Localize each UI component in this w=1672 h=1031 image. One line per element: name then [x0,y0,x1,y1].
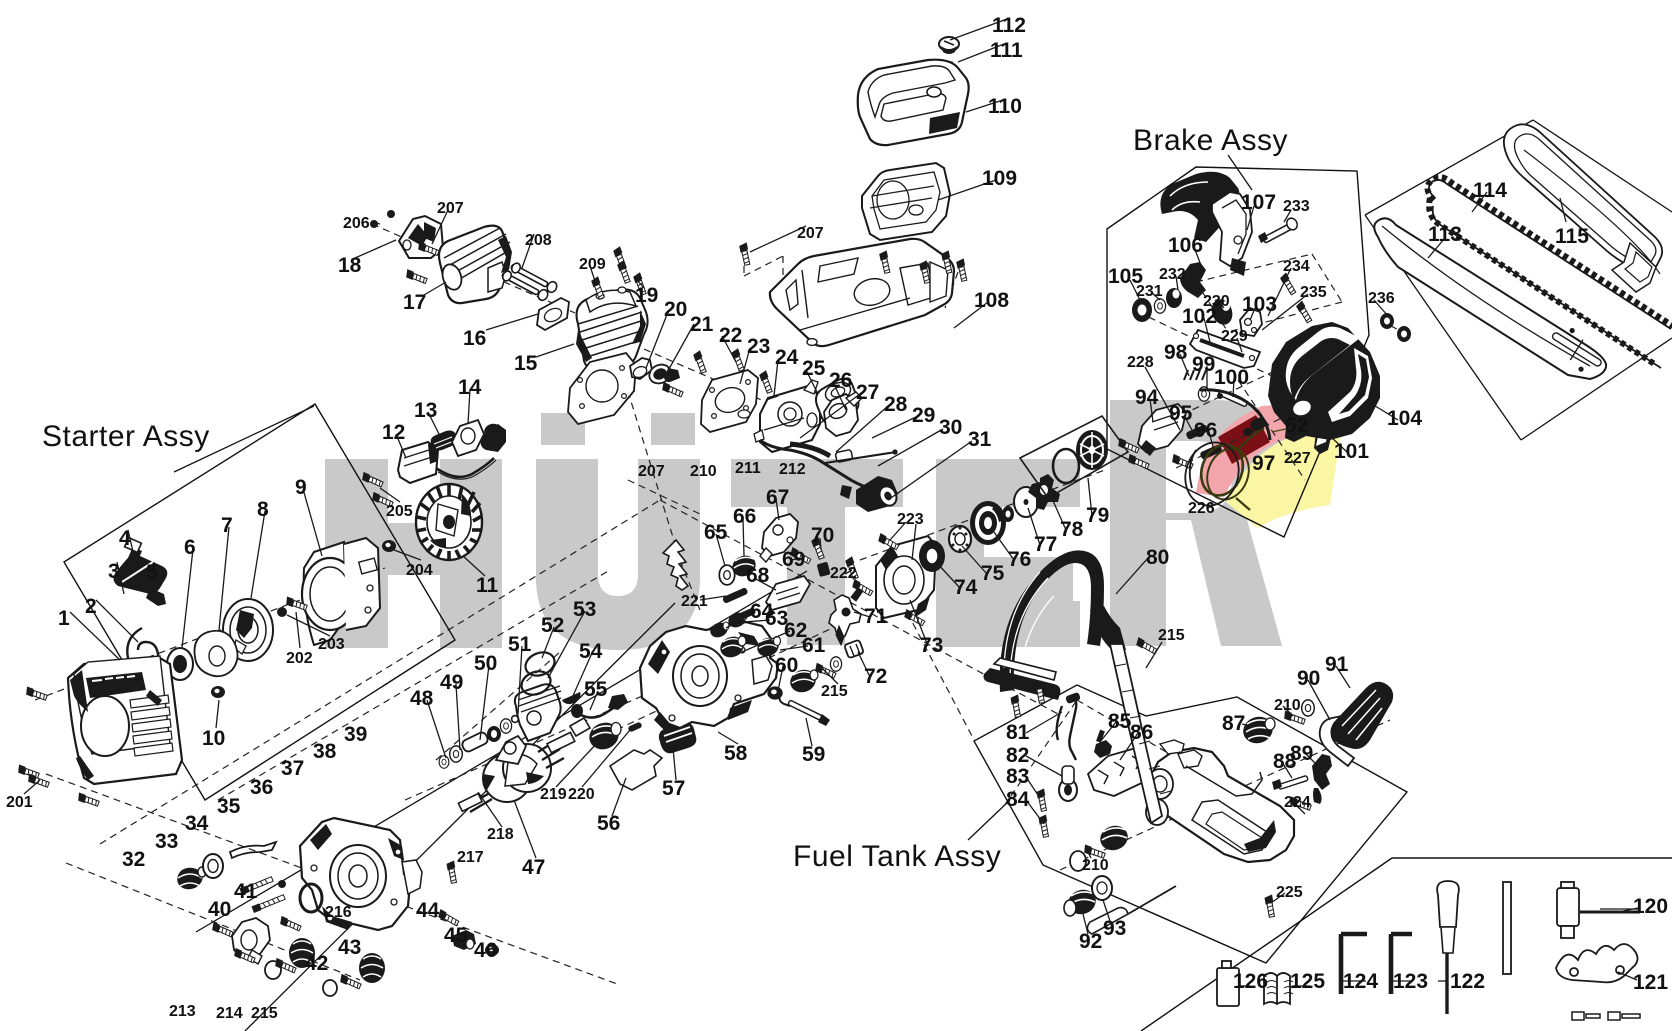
svg-text:15: 15 [514,352,538,375]
svg-text:78: 78 [1060,518,1084,541]
svg-text:57: 57 [662,777,685,800]
svg-text:59: 59 [802,743,825,766]
svg-text:9: 9 [295,476,307,499]
svg-text:215: 215 [1158,627,1185,644]
svg-text:45: 45 [444,924,468,947]
svg-text:92: 92 [1079,930,1102,953]
svg-text:101: 101 [1334,440,1369,463]
svg-text:32: 32 [122,848,145,871]
svg-text:211: 211 [735,460,761,477]
svg-text:125: 125 [1290,970,1325,993]
svg-text:115: 115 [1555,225,1589,248]
svg-text:85: 85 [1108,710,1132,733]
svg-text:53: 53 [573,598,596,621]
svg-text:1: 1 [58,607,70,630]
svg-text:207: 207 [437,200,464,217]
svg-text:36: 36 [250,776,273,799]
svg-text:98: 98 [1164,341,1188,364]
svg-text:80: 80 [1146,546,1169,569]
svg-text:210: 210 [690,463,717,480]
svg-text:29: 29 [912,404,935,427]
svg-text:114: 114 [1473,179,1507,202]
svg-text:35: 35 [217,795,241,818]
svg-text:71: 71 [864,605,888,628]
svg-text:58: 58 [724,742,748,765]
svg-text:64: 64 [750,600,774,623]
svg-text:2: 2 [85,595,97,618]
svg-text:16: 16 [463,327,486,350]
svg-text:24: 24 [775,346,799,369]
svg-text:215: 215 [821,683,848,700]
svg-text:73: 73 [920,634,943,657]
svg-text:86: 86 [1130,721,1153,744]
svg-text:236: 236 [1368,290,1395,307]
svg-text:234: 234 [1283,258,1310,275]
svg-text:123: 123 [1393,970,1428,993]
svg-text:206: 206 [343,215,370,232]
svg-text:75: 75 [981,562,1005,585]
svg-text:228: 228 [1127,354,1154,371]
svg-text:229: 229 [1221,328,1248,345]
svg-text:100: 100 [1214,366,1249,389]
svg-text:38: 38 [313,740,337,763]
svg-text:99: 99 [1192,353,1215,376]
svg-text:112: 112 [992,14,1026,37]
svg-text:14: 14 [458,376,482,399]
svg-text:113: 113 [1428,223,1462,246]
svg-text:107: 107 [1241,191,1276,214]
svg-text:22: 22 [719,324,742,347]
svg-text:19: 19 [635,284,658,307]
svg-text:209: 209 [579,256,606,273]
svg-text:68: 68 [746,564,770,587]
svg-text:77: 77 [1034,533,1057,556]
svg-text:93: 93 [1103,917,1126,940]
svg-text:230: 230 [1203,293,1230,310]
svg-text:120: 120 [1633,895,1668,918]
svg-text:81: 81 [1006,721,1030,744]
svg-text:44: 44 [416,899,440,922]
svg-text:Starter Assy: Starter Assy [42,420,210,453]
svg-text:108: 108 [974,289,1009,312]
svg-text:89: 89 [1290,742,1313,765]
svg-text:34: 34 [185,812,209,835]
svg-text:217: 217 [457,849,484,866]
svg-text:Brake Assy: Brake Assy [1133,124,1288,157]
svg-text:49: 49 [440,671,463,694]
svg-text:12: 12 [382,421,405,444]
svg-text:235: 235 [1300,284,1327,301]
svg-text:50: 50 [474,652,497,675]
svg-text:46: 46 [474,939,497,962]
svg-text:7: 7 [221,514,233,537]
svg-text:28: 28 [884,393,908,416]
svg-text:222: 222 [830,565,857,582]
svg-text:26: 26 [829,369,852,392]
svg-text:221: 221 [681,593,708,610]
svg-text:210: 210 [1274,697,1301,714]
svg-text:20: 20 [664,298,687,321]
svg-text:13: 13 [414,399,437,422]
svg-text:10: 10 [202,727,225,750]
svg-text:225: 225 [1276,884,1303,901]
svg-text:41: 41 [234,880,258,903]
svg-text:37: 37 [281,757,304,780]
svg-text:110: 110 [988,95,1022,118]
svg-text:52: 52 [541,614,564,637]
svg-text:233: 233 [1283,198,1310,215]
svg-text:18: 18 [338,254,362,277]
svg-text:25: 25 [802,357,826,380]
svg-text:8: 8 [257,498,269,521]
svg-text:104: 104 [1387,407,1422,430]
svg-text:87: 87 [1222,712,1245,735]
svg-text:21: 21 [690,313,714,336]
svg-text:214: 214 [216,1005,243,1022]
svg-text:223: 223 [897,511,924,528]
svg-text:207: 207 [638,463,665,480]
svg-text:231: 231 [1136,283,1163,300]
svg-text:17: 17 [403,291,426,314]
svg-text:220: 220 [568,786,595,803]
svg-text:76: 76 [1008,548,1031,571]
svg-text:69: 69 [782,548,805,571]
svg-text:55: 55 [584,678,608,701]
svg-text:121: 121 [1633,971,1668,994]
svg-text:Fuel Tank Assy: Fuel Tank Assy [793,840,1001,873]
svg-text:94: 94 [1135,386,1159,409]
svg-text:3: 3 [108,560,120,583]
svg-text:103: 103 [1242,293,1277,316]
svg-text:48: 48 [410,687,434,710]
svg-text:207: 207 [797,225,824,242]
svg-text:203: 203 [318,636,345,653]
svg-text:4: 4 [119,527,131,550]
svg-text:66: 66 [733,505,756,528]
svg-text:56: 56 [597,812,620,835]
svg-text:219: 219 [540,786,567,803]
svg-text:30: 30 [939,416,962,439]
svg-text:232: 232 [1159,266,1186,283]
svg-text:6: 6 [184,536,196,559]
svg-text:42: 42 [305,952,328,975]
svg-text:95: 95 [1169,402,1193,425]
svg-text:208: 208 [525,232,552,249]
svg-text:109: 109 [982,167,1017,190]
svg-text:215: 215 [251,1005,278,1022]
svg-text:126: 126 [1233,970,1268,993]
svg-text:65: 65 [704,521,728,544]
svg-text:23: 23 [747,335,770,358]
svg-text:27: 27 [856,381,879,404]
svg-text:84: 84 [1006,788,1030,811]
svg-text:106: 106 [1168,234,1203,257]
svg-text:72: 72 [864,665,887,688]
svg-text:122: 122 [1450,970,1485,993]
svg-text:204: 204 [406,562,433,579]
svg-text:111: 111 [990,39,1023,62]
svg-text:5: 5 [146,561,158,584]
svg-text:39: 39 [344,723,367,746]
svg-text:202: 202 [286,650,313,667]
svg-text:70: 70 [811,524,834,547]
svg-text:124: 124 [1343,970,1378,993]
svg-text:43: 43 [338,936,361,959]
svg-text:216: 216 [325,904,352,921]
svg-text:60: 60 [775,654,798,677]
svg-text:51: 51 [508,633,532,656]
svg-text:47: 47 [522,856,545,879]
svg-text:213: 213 [169,1003,196,1020]
svg-text:201: 201 [6,794,33,811]
svg-text:96: 96 [1194,419,1217,442]
svg-text:227: 227 [1284,450,1311,467]
svg-text:224: 224 [1284,794,1311,811]
svg-text:74: 74 [954,576,978,599]
svg-text:91: 91 [1325,653,1349,676]
svg-text:79: 79 [1086,504,1109,527]
svg-text:31: 31 [968,428,992,451]
svg-text:33: 33 [155,830,178,853]
svg-text:205: 205 [386,503,413,520]
svg-text:11: 11 [476,574,499,597]
svg-text:218: 218 [487,826,514,843]
svg-text:67: 67 [766,486,789,509]
svg-text:97: 97 [1252,452,1275,475]
svg-text:40: 40 [208,898,231,921]
svg-text:90: 90 [1297,667,1320,690]
svg-text:82: 82 [1006,744,1029,767]
svg-text:62: 62 [1285,414,1308,437]
svg-text:212: 212 [779,461,806,478]
svg-text:54: 54 [579,640,603,663]
svg-text:83: 83 [1006,765,1029,788]
svg-text:210: 210 [1082,857,1109,874]
svg-text:226: 226 [1188,500,1215,517]
